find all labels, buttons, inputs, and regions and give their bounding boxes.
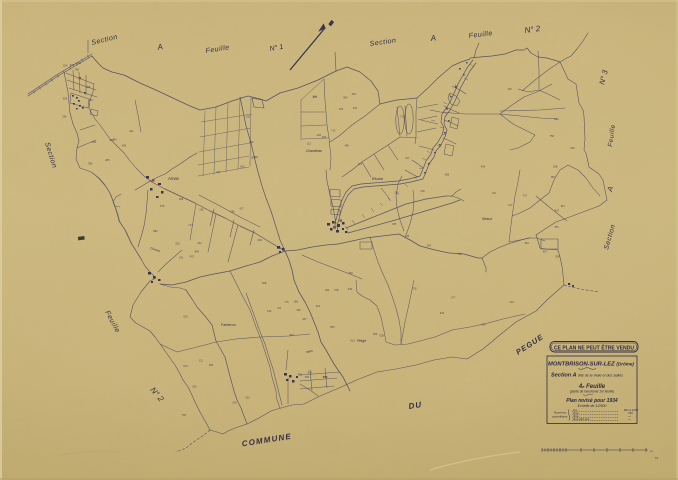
svg-text:458: 458 xyxy=(298,372,303,376)
svg-text:710: 710 xyxy=(277,306,282,310)
svg-text:328: 328 xyxy=(63,97,68,101)
svg-text:613: 613 xyxy=(183,315,188,319)
svg-text:796: 796 xyxy=(457,252,462,256)
svg-text:247: 247 xyxy=(405,156,410,160)
svg-text:557: 557 xyxy=(543,249,548,253)
svg-text:882: 882 xyxy=(153,229,158,233)
svg-text:765: 765 xyxy=(182,413,187,417)
svg-text:727: 727 xyxy=(523,193,528,197)
svg-text:CE PLAN NE PEUT ÊTRE VENDU: CE PLAN NE PEUT ÊTRE VENDU xyxy=(554,343,634,351)
svg-text:316: 316 xyxy=(232,400,237,404)
svg-text:758: 758 xyxy=(550,134,555,138)
svg-text:228: 228 xyxy=(317,133,322,137)
svg-text:624: 624 xyxy=(481,322,486,326)
svg-text:121: 121 xyxy=(199,358,204,362)
svg-text:Séaux: Séaux xyxy=(482,217,492,221)
svg-text:662: 662 xyxy=(240,164,245,168)
svg-text:421: 421 xyxy=(197,241,202,245)
svg-text:285: 285 xyxy=(105,158,110,162)
svg-text:856: 856 xyxy=(249,140,254,144)
svg-text:160: 160 xyxy=(246,115,251,119)
svg-text:857: 857 xyxy=(555,225,560,229)
svg-text:396: 396 xyxy=(88,161,93,165)
svg-text:407: 407 xyxy=(216,170,221,174)
svg-text:326: 326 xyxy=(86,85,91,89)
svg-text:433: 433 xyxy=(509,300,514,304)
svg-text:Grandhan: Grandhan xyxy=(306,149,322,153)
svg-text:195: 195 xyxy=(199,208,204,212)
svg-text:325: 325 xyxy=(570,146,575,150)
svg-text:365: 365 xyxy=(209,363,214,367)
svg-text:608: 608 xyxy=(251,156,256,160)
svg-text:Echelle de 1/2500: Echelle de 1/2500 xyxy=(578,404,607,408)
svg-text:489: 489 xyxy=(344,143,349,147)
svg-text:313: 313 xyxy=(353,106,358,110)
svg-text:254: 254 xyxy=(352,92,357,96)
svg-text:897: 897 xyxy=(551,175,556,179)
svg-text:567: 567 xyxy=(427,244,432,248)
svg-text:728: 728 xyxy=(412,287,417,291)
svg-text:846: 846 xyxy=(195,250,200,254)
svg-text:622: 622 xyxy=(316,304,321,308)
svg-text:455: 455 xyxy=(392,222,397,226)
svg-text:parcellaires: parcellaires xyxy=(551,415,568,419)
svg-text:164: 164 xyxy=(109,138,114,142)
svg-text:875: 875 xyxy=(160,204,165,208)
svg-text:369: 369 xyxy=(322,135,327,139)
svg-text:878: 878 xyxy=(323,375,328,379)
svg-text:528: 528 xyxy=(70,63,75,67)
svg-text:163: 163 xyxy=(88,98,93,102)
svg-text:200: 200 xyxy=(309,349,314,353)
svg-text:112: 112 xyxy=(307,141,312,145)
svg-text:371: 371 xyxy=(358,162,363,166)
svg-text:776: 776 xyxy=(284,300,289,304)
svg-text:768: 768 xyxy=(334,288,339,292)
svg-text:174: 174 xyxy=(188,223,193,227)
svg-text:576: 576 xyxy=(183,364,188,368)
svg-text:556: 556 xyxy=(277,246,282,250)
svg-text:780: 780 xyxy=(230,209,235,213)
svg-text:647: 647 xyxy=(313,95,318,99)
svg-text:Farberou: Farberou xyxy=(221,323,236,327)
svg-text:280: 280 xyxy=(343,96,348,100)
svg-text:162: 162 xyxy=(245,395,250,399)
svg-text:188: 188 xyxy=(293,300,298,304)
svg-text:354: 354 xyxy=(305,375,310,379)
svg-text:604: 604 xyxy=(554,117,559,121)
svg-text:128: 128 xyxy=(507,87,512,91)
svg-text:242: 242 xyxy=(192,384,197,388)
svg-text:Rivoire: Rivoire xyxy=(372,177,383,181)
svg-text:196: 196 xyxy=(62,115,67,119)
svg-text:463: 463 xyxy=(258,238,263,242)
svg-text:505: 505 xyxy=(330,325,335,329)
svg-text:367: 367 xyxy=(561,204,566,208)
svg-text:A: A xyxy=(429,33,437,43)
svg-text:218: 218 xyxy=(420,189,425,193)
svg-text:4me part.anc.: 4me part.anc. xyxy=(573,417,590,421)
svg-text:728: 728 xyxy=(348,271,353,275)
svg-text:732: 732 xyxy=(331,128,336,132)
svg-text:640: 640 xyxy=(348,287,353,291)
svg-text:464: 464 xyxy=(524,241,529,245)
svg-text:619: 619 xyxy=(77,61,82,65)
svg-text:457: 457 xyxy=(555,209,560,213)
svg-text:186: 186 xyxy=(296,308,301,312)
svg-text:298: 298 xyxy=(553,165,558,169)
svg-text:525: 525 xyxy=(339,107,344,111)
svg-text:417: 417 xyxy=(239,207,244,211)
svg-text:253: 253 xyxy=(373,332,378,336)
svg-text:534: 534 xyxy=(63,63,68,67)
svg-text:724: 724 xyxy=(492,191,497,195)
svg-text:766: 766 xyxy=(75,68,80,72)
svg-text:508: 508 xyxy=(445,172,450,176)
svg-text:629: 629 xyxy=(380,334,385,338)
svg-text:510: 510 xyxy=(394,191,399,195)
svg-text:292: 292 xyxy=(92,140,97,144)
svg-text:531: 531 xyxy=(179,255,184,259)
svg-text:470: 470 xyxy=(190,254,195,258)
svg-text:613: 613 xyxy=(351,338,356,342)
svg-text:608: 608 xyxy=(179,197,184,201)
svg-text:64: 64 xyxy=(655,456,659,460)
svg-text:299: 299 xyxy=(555,254,560,258)
svg-text:828: 828 xyxy=(262,281,267,285)
svg-text:127: 127 xyxy=(508,203,513,207)
svg-text:715: 715 xyxy=(400,115,405,119)
svg-text:620: 620 xyxy=(440,311,445,315)
svg-text:282: 282 xyxy=(325,288,330,292)
svg-text:230: 230 xyxy=(267,309,272,313)
svg-text:628: 628 xyxy=(405,234,410,238)
svg-text:—: — xyxy=(627,417,631,421)
svg-text:(partie de l'ancienne 1re feui: (partie de l'ancienne 1re feuille) xyxy=(570,390,614,394)
svg-text:445: 445 xyxy=(481,164,486,168)
svg-text:421: 421 xyxy=(129,129,134,133)
svg-text:Piège: Piège xyxy=(357,339,366,343)
svg-text:608: 608 xyxy=(122,143,127,147)
svg-text:842: 842 xyxy=(308,371,313,375)
svg-text:577: 577 xyxy=(451,296,456,300)
svg-text:815: 815 xyxy=(176,241,181,245)
svg-text:569: 569 xyxy=(289,333,294,337)
svg-text:287: 287 xyxy=(302,317,307,321)
svg-text:Arnas: Arnas xyxy=(167,176,180,181)
